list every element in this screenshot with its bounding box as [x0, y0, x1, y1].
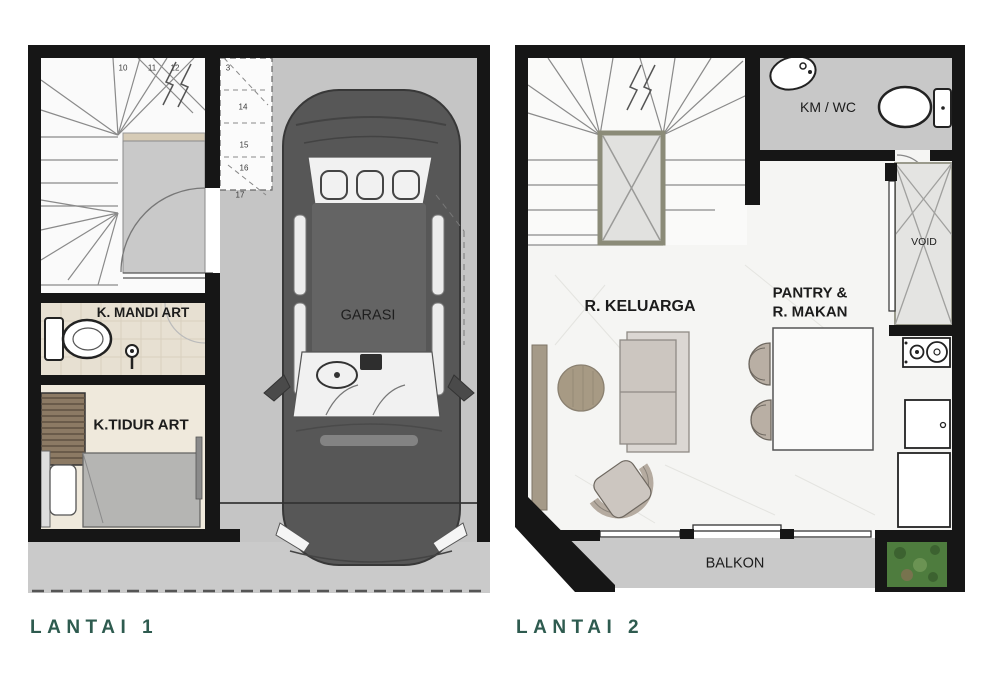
side-table — [558, 365, 604, 411]
car-roof — [312, 203, 426, 354]
garage-label: GARASI — [341, 308, 396, 325]
counter-unit — [898, 453, 950, 527]
stair-step-10: 10 — [119, 64, 128, 73]
stair-step-11: 11 — [148, 64, 156, 73]
hall-floor — [123, 141, 205, 273]
dash-console — [360, 354, 382, 370]
car — [264, 90, 474, 565]
stair-step-12: 12 — [171, 64, 180, 73]
rear-headrests — [321, 171, 419, 199]
pillow — [50, 465, 76, 515]
grille — [320, 435, 418, 446]
wc-label: KM / WC — [800, 99, 856, 115]
stair-step-13: 3 — [226, 64, 230, 73]
void-label: VOID — [911, 236, 937, 248]
stair-step-16: 16 — [240, 164, 249, 173]
pantry-counter — [898, 338, 950, 527]
family-room-label: R. KELUARGA — [584, 298, 695, 316]
floor2-title: LANTAI 2 — [516, 617, 644, 639]
balcony-label: BALKON — [706, 556, 765, 573]
pantry-label-line2: R. MAKAN — [773, 303, 848, 322]
stair-step-15: 15 — [240, 141, 249, 150]
floor2-plan: KM / WC VOID R. KELUARGA PANTRY & R. MAK… — [515, 45, 965, 592]
stair2-shaft — [600, 133, 663, 243]
bedroom-label: K.TIDUR ART — [93, 416, 188, 433]
floor1-plan: K. MANDI ART K.TIDUR ART GARASI 10 11 12… — [28, 45, 490, 600]
stair-step-17: 17 — [236, 191, 245, 200]
floor1-drawing — [28, 45, 490, 600]
pantry-label: PANTRY & R. MAKAN — [773, 284, 848, 322]
sofa — [620, 332, 689, 452]
stair-step-14: 14 — [239, 103, 248, 112]
planter — [887, 542, 947, 587]
pantry-label-line1: PANTRY & — [773, 284, 848, 303]
stair-landing-strip — [123, 133, 205, 141]
tv-console — [532, 345, 547, 510]
floorplan-canvas: K. MANDI ART K.TIDUR ART GARASI 10 11 12… — [0, 0, 1002, 685]
wc-toilet — [879, 87, 951, 127]
toilet — [45, 318, 111, 360]
stove — [903, 338, 950, 367]
void-window — [889, 181, 895, 311]
floor2-drawing — [515, 45, 965, 592]
dining-table — [773, 328, 873, 450]
bedside-ledge — [196, 437, 202, 499]
bathroom-label: K. MANDI ART — [97, 305, 190, 321]
floor1-title: LANTAI 1 — [30, 617, 158, 639]
cabinet — [905, 400, 950, 448]
